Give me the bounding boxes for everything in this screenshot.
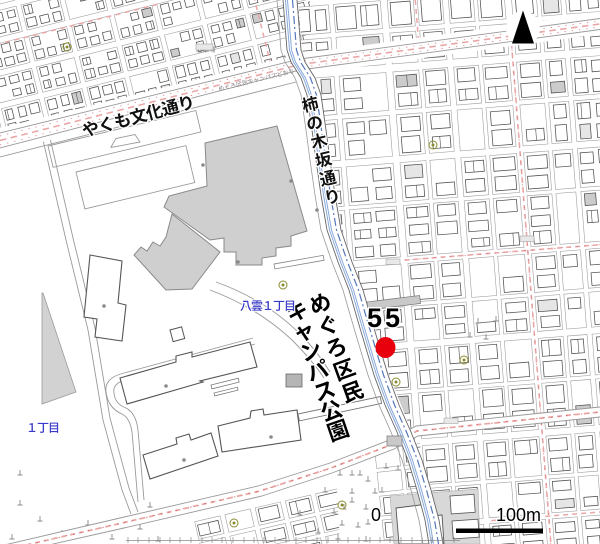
svg-text:55: 55 (367, 303, 403, 333)
svg-text:100m: 100m (496, 505, 541, 525)
svg-text:0: 0 (371, 505, 381, 525)
